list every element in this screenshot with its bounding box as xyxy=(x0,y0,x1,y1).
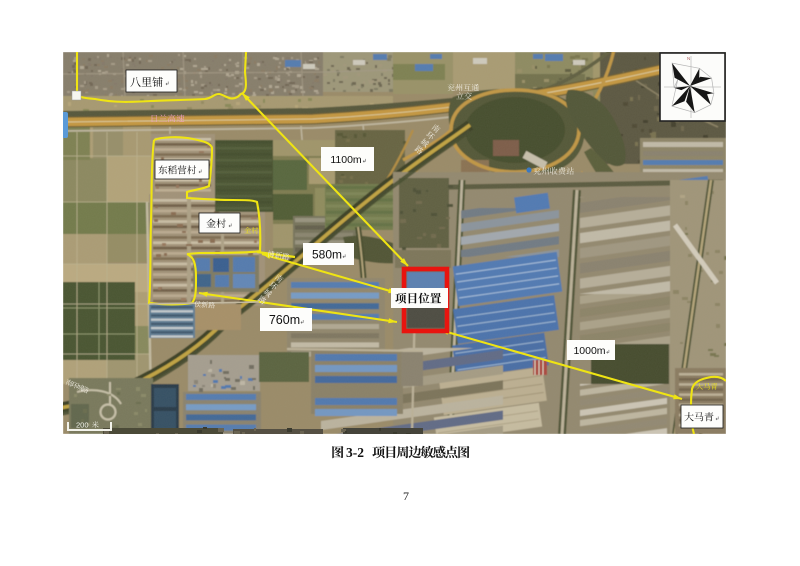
svg-text:3-2: 3-2 xyxy=(346,445,364,460)
svg-text:1100m: 1100m xyxy=(330,154,362,166)
svg-text:200: 200 xyxy=(76,421,89,430)
svg-text:760m: 760m xyxy=(269,313,300,327)
svg-text:1000m: 1000m xyxy=(573,345,605,357)
svg-text:580m: 580m xyxy=(312,247,342,261)
svg-text:N: N xyxy=(687,56,690,61)
